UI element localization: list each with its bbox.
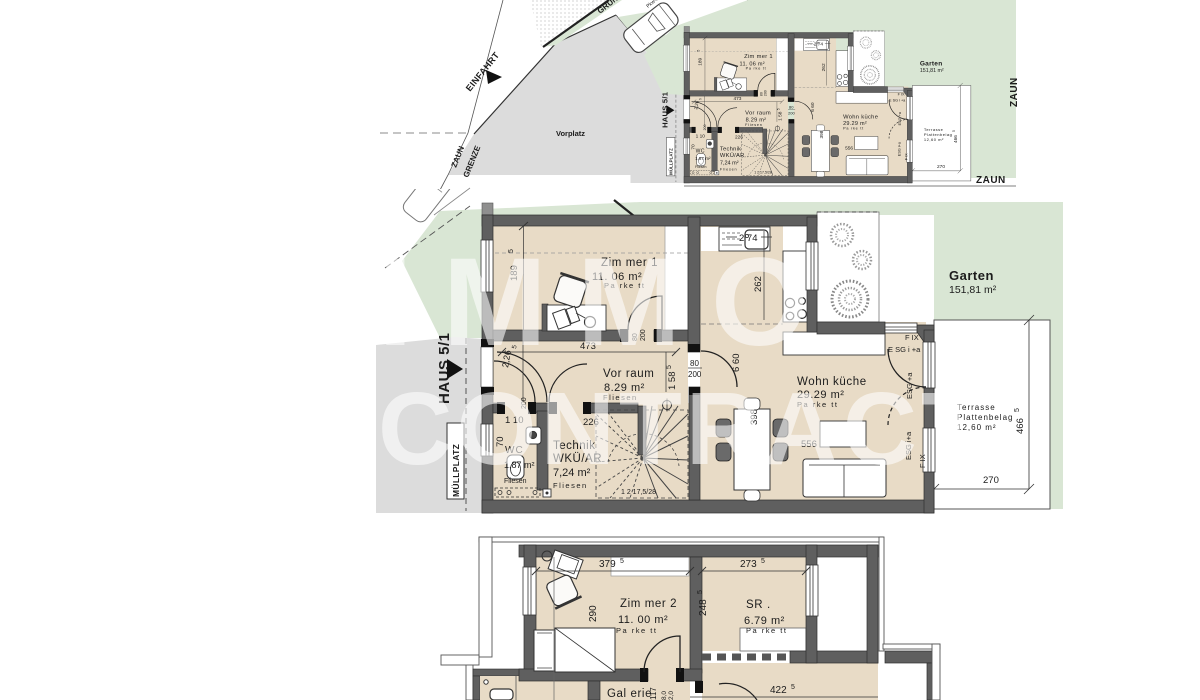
svg-text:5: 5 (761, 558, 765, 565)
svg-text:IMMO: IMMO (378, 233, 838, 372)
svg-text:Gal erie: Gal erie (607, 688, 652, 700)
svg-text:CONTRACT: CONTRACT (378, 371, 988, 486)
svg-text:11. 00 m²: 11. 00 m² (618, 614, 668, 626)
svg-text:2,0: 2,0 (668, 691, 675, 700)
svg-text:5: 5 (620, 558, 624, 565)
svg-text:5: 5 (791, 684, 795, 691)
svg-text:290: 290 (588, 605, 599, 622)
svg-text:248: 248 (698, 599, 709, 616)
svg-text:8,0: 8,0 (661, 691, 668, 700)
svg-text:117: 117 (649, 687, 658, 700)
svg-text:Pa rke tt: Pa rke tt (746, 626, 787, 635)
svg-text:422: 422 (770, 685, 787, 696)
svg-text:Vorplatz: Vorplatz (556, 129, 585, 138)
svg-text:Pa rke tt: Pa rke tt (616, 626, 657, 635)
svg-text:ZAUN: ZAUN (976, 175, 1006, 186)
svg-text:Zim mer 2: Zim mer 2 (620, 598, 677, 610)
svg-text:SR .: SR . (746, 599, 771, 611)
svg-text:ZAUN: ZAUN (1009, 77, 1020, 107)
svg-text:273: 273 (740, 559, 757, 570)
svg-text:379: 379 (599, 559, 616, 570)
svg-text:5: 5 (697, 590, 704, 594)
